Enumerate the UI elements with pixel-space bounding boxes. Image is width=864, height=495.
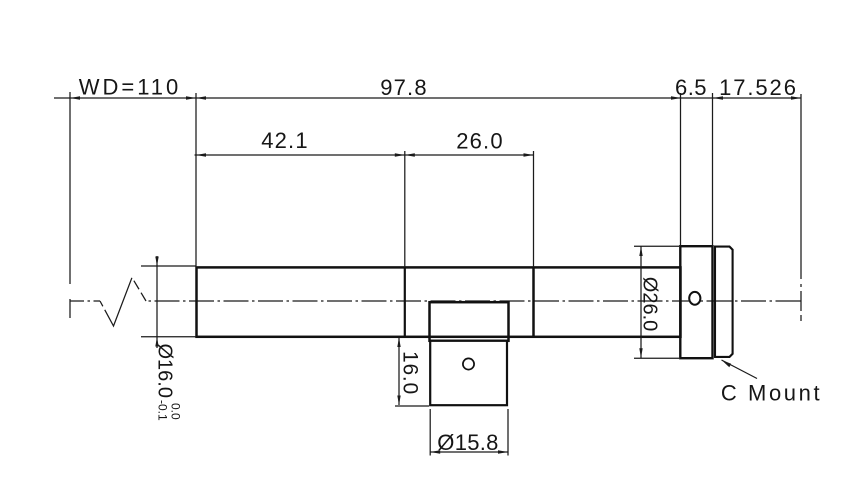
svg-text:WD=110: WD=110 bbox=[79, 75, 182, 100]
svg-text:26.0: 26.0 bbox=[456, 129, 504, 154]
svg-text:-0.1: -0.1 bbox=[156, 400, 170, 421]
svg-text:0.0: 0.0 bbox=[169, 403, 183, 420]
svg-text:16.0: 16.0 bbox=[399, 351, 422, 395]
svg-text:97.8: 97.8 bbox=[380, 75, 428, 100]
svg-text:6.5: 6.5 bbox=[675, 75, 707, 100]
svg-text:Ø15.8: Ø15.8 bbox=[437, 430, 498, 455]
svg-text:C Mount: C Mount bbox=[721, 381, 822, 406]
svg-text:Ø16.0: Ø16.0 bbox=[154, 344, 176, 398]
svg-text:Ø26.0: Ø26.0 bbox=[639, 277, 661, 331]
svg-text:42.1: 42.1 bbox=[261, 128, 309, 153]
svg-text:17.526: 17.526 bbox=[719, 75, 798, 100]
